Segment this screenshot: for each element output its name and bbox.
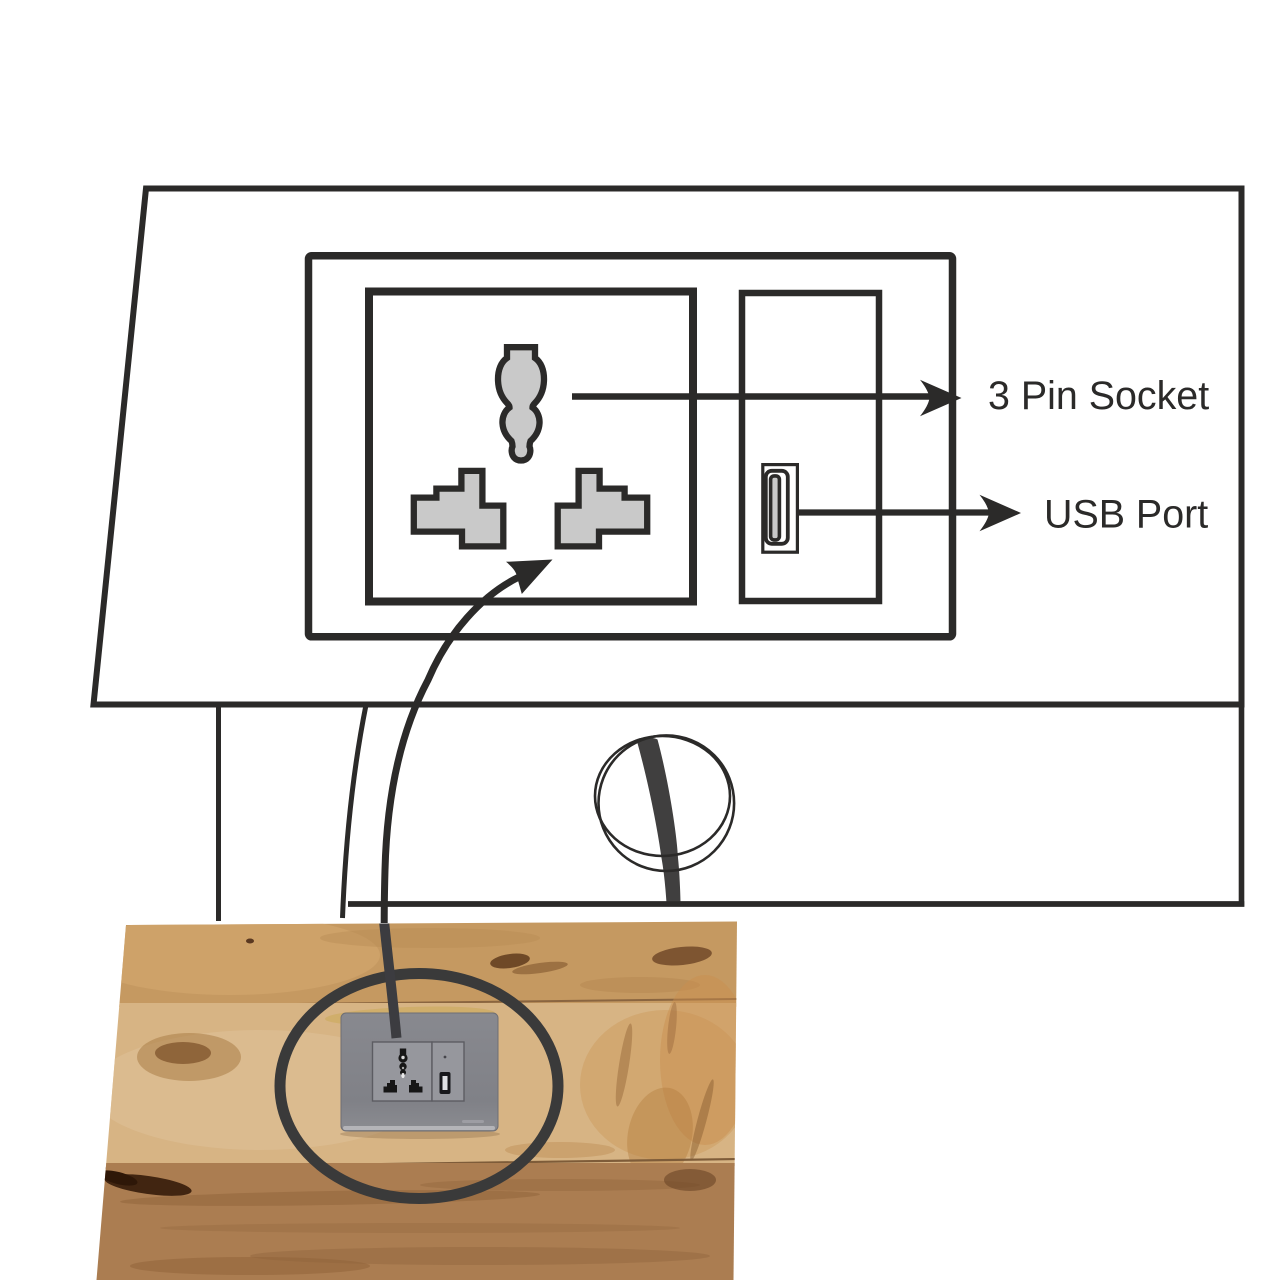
svg-text:USB Port: USB Port bbox=[1044, 493, 1208, 537]
svg-text:3 Pin Socket: 3 Pin Socket bbox=[988, 374, 1209, 418]
